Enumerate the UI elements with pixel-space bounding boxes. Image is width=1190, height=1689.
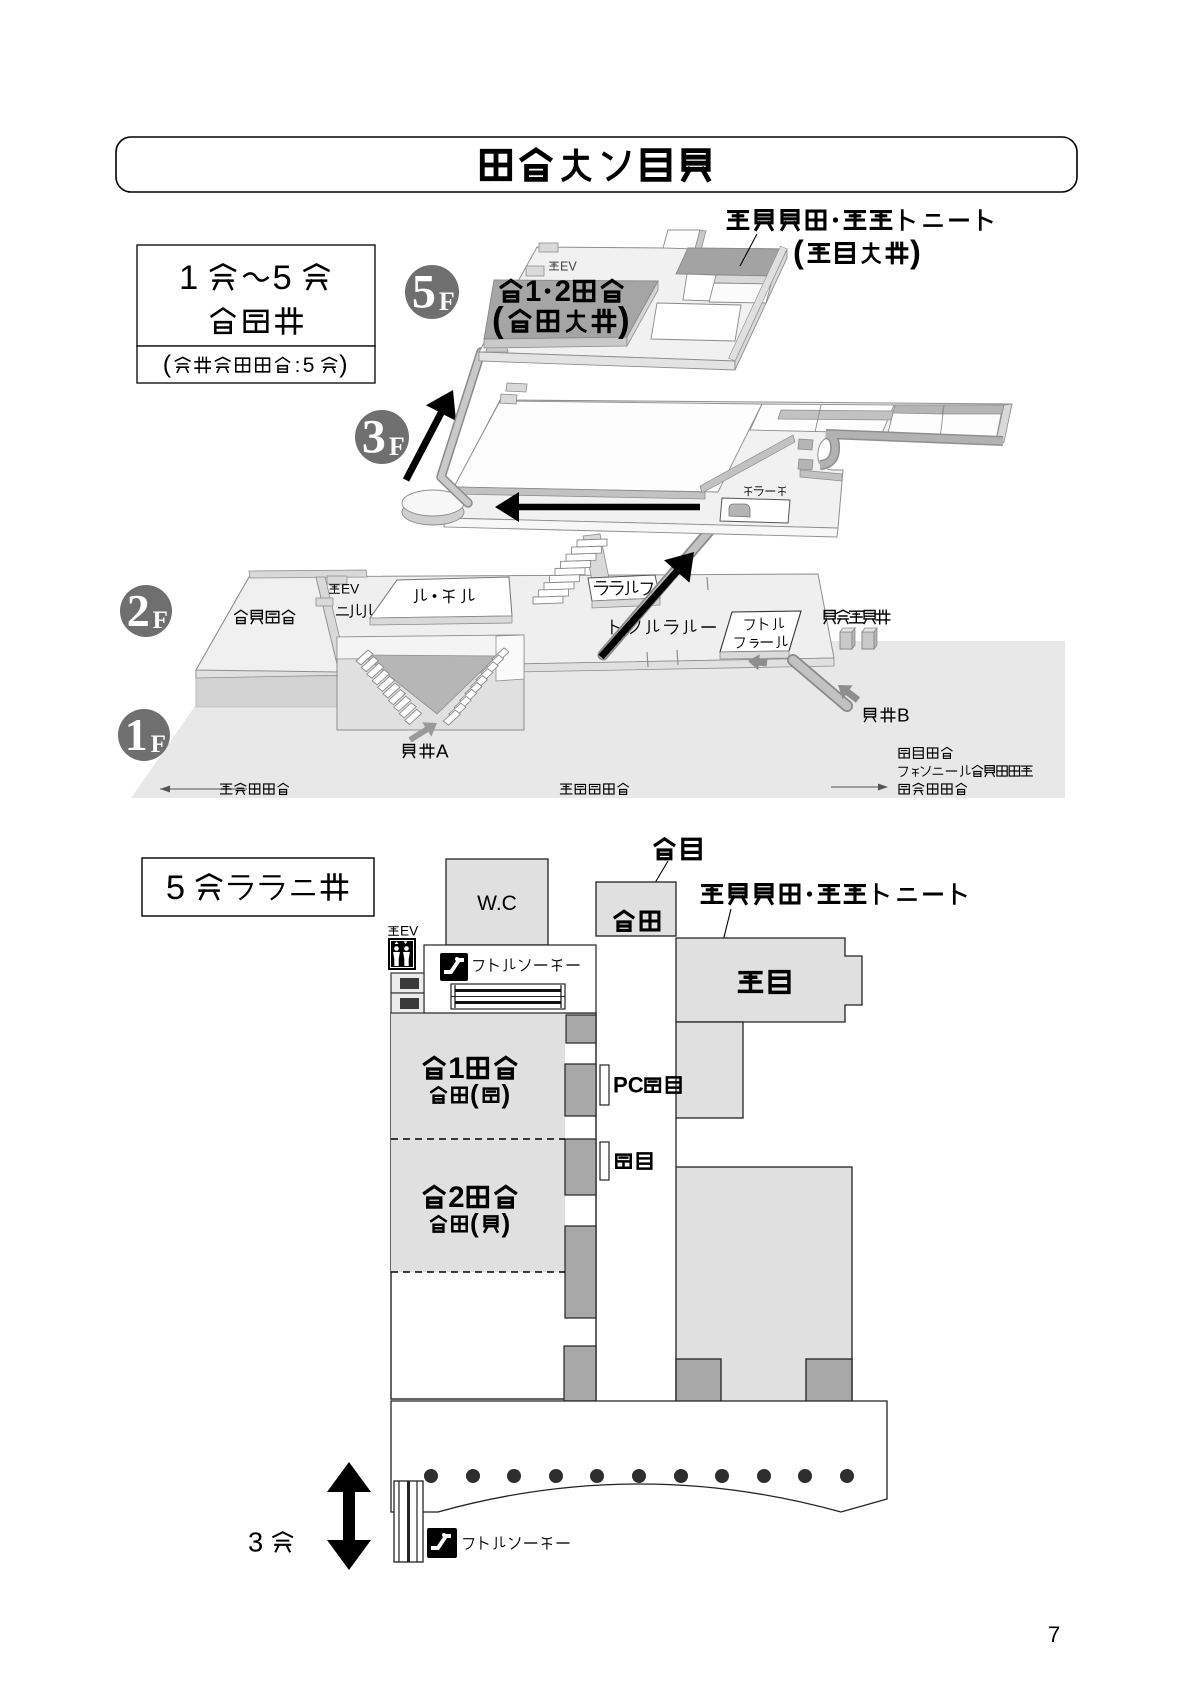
svg-text:): ) [502, 1208, 511, 1238]
svg-text:5: 5 [412, 266, 436, 319]
svg-text:1: 1 [448, 1052, 464, 1085]
svg-text:A: A [436, 742, 449, 763]
svg-text:): ) [502, 1079, 511, 1109]
svg-text:F: F [151, 731, 166, 758]
svg-text:EV: EV [400, 924, 419, 939]
svg-text:1: 1 [125, 709, 148, 760]
svg-text:EV: EV [341, 582, 360, 597]
svg-text:(: ( [163, 351, 172, 379]
svg-text:W.C: W.C [477, 892, 517, 915]
svg-text::: : [295, 355, 301, 377]
svg-text:F: F [439, 287, 455, 316]
svg-text:F: F [153, 607, 168, 634]
svg-text:2: 2 [555, 275, 571, 308]
svg-text:): ) [339, 351, 347, 379]
svg-text:5: 5 [166, 869, 185, 907]
svg-text:EV: EV [560, 259, 577, 273]
svg-text:1: 1 [179, 259, 198, 297]
svg-text:3: 3 [248, 1526, 263, 1557]
svg-text:): ) [618, 301, 630, 340]
svg-text:B: B [897, 706, 910, 727]
svg-text:3: 3 [362, 411, 386, 464]
svg-text:PC: PC [613, 1073, 644, 1098]
svg-text:1: 1 [525, 275, 541, 308]
svg-text:5: 5 [273, 259, 292, 297]
svg-text:(: ( [793, 234, 804, 270]
svg-text:): ) [910, 234, 921, 270]
svg-text:5: 5 [303, 354, 315, 377]
svg-text:(: ( [492, 301, 504, 340]
svg-text:2: 2 [127, 585, 150, 636]
svg-text:(: ( [470, 1208, 479, 1238]
svg-text:7: 7 [1048, 1622, 1060, 1647]
svg-text:(: ( [470, 1079, 479, 1109]
svg-text:F: F [389, 432, 405, 461]
svg-text:2: 2 [448, 1181, 464, 1214]
